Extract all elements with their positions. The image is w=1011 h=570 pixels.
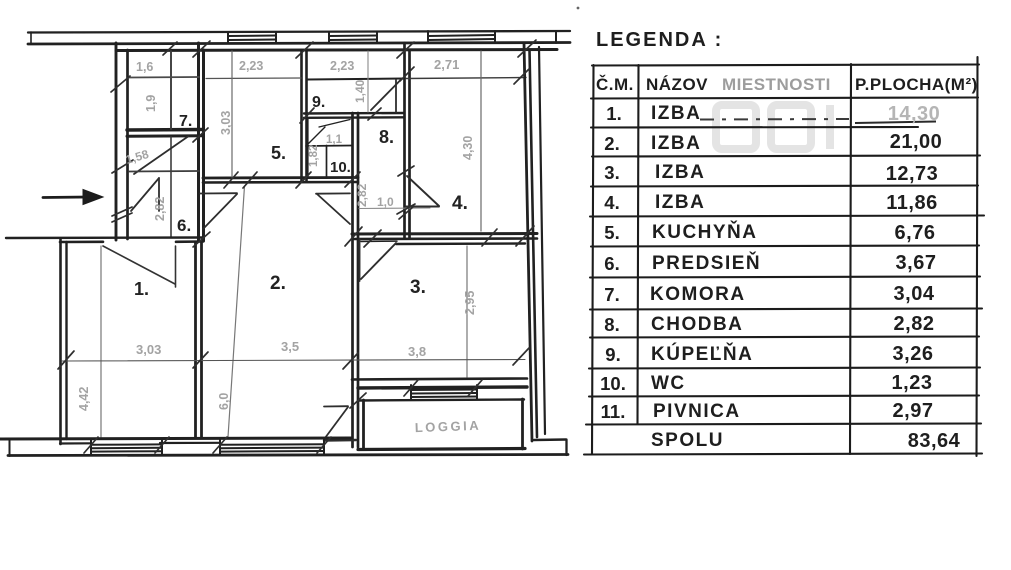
svg-text:1.: 1. [606, 103, 621, 124]
svg-text:1.: 1. [134, 279, 149, 299]
svg-text:8.: 8. [379, 127, 394, 147]
svg-text:KOMORA: KOMORA [650, 284, 746, 305]
svg-text:KUCHYŇA: KUCHYŇA [652, 221, 758, 243]
svg-text:1,6: 1,6 [136, 60, 153, 74]
svg-text:Č.M.: Č.M. [596, 75, 634, 94]
svg-text:3,67: 3,67 [896, 252, 937, 274]
svg-text:CHODBA: CHODBA [651, 314, 743, 335]
svg-text:6.: 6. [177, 216, 191, 235]
svg-text:2,82: 2,82 [355, 183, 369, 207]
svg-text:3.: 3. [604, 162, 619, 183]
svg-text:11,86: 11,86 [886, 192, 937, 214]
svg-text:PREDSIEŇ: PREDSIEŇ [652, 252, 761, 274]
svg-text:IZBA: IZBA [651, 133, 701, 154]
svg-text:7.: 7. [179, 113, 192, 130]
svg-text:1,1: 1,1 [326, 134, 343, 146]
svg-text:P.PLOCHA(M²): P.PLOCHA(M²) [855, 75, 978, 94]
svg-text:4,30: 4,30 [461, 136, 475, 160]
svg-text:3,26: 3,26 [893, 343, 934, 365]
svg-text:14,30: 14,30 [888, 103, 941, 125]
svg-text:10.: 10. [600, 373, 626, 394]
svg-text:WC: WC [651, 373, 686, 394]
svg-text:1,82: 1,82 [308, 145, 320, 167]
svg-text:KÚPEĽŇA: KÚPEĽŇA [651, 343, 753, 365]
svg-text:1,9: 1,9 [144, 95, 158, 112]
svg-text:4.: 4. [604, 192, 619, 213]
svg-text:2,97: 2,97 [893, 400, 934, 422]
svg-text:9.: 9. [605, 344, 620, 365]
svg-text:4.: 4. [452, 193, 468, 214]
svg-text:LOGGIA: LOGGIA [415, 418, 482, 435]
svg-text:5.: 5. [604, 222, 619, 243]
svg-text:12,73: 12,73 [886, 163, 939, 185]
svg-text:21,00: 21,00 [890, 131, 943, 153]
svg-text:3,04: 3,04 [894, 283, 935, 305]
svg-text:2,82: 2,82 [894, 313, 935, 335]
svg-text:SPOLU: SPOLU [651, 430, 724, 451]
svg-text:2.: 2. [270, 273, 286, 294]
svg-text:IZBA: IZBA [655, 162, 705, 183]
svg-text:3,03: 3,03 [219, 111, 233, 135]
svg-text:10.: 10. [330, 159, 351, 176]
svg-text:1,0: 1,0 [377, 195, 394, 209]
svg-text:NÁZOV: NÁZOV [646, 75, 708, 94]
svg-text:3,5: 3,5 [281, 339, 299, 354]
svg-text:9.: 9. [312, 94, 325, 111]
svg-text:IZBA: IZBA [651, 103, 701, 124]
svg-text:3,03: 3,03 [136, 342, 161, 357]
svg-text:6,76: 6,76 [895, 222, 936, 244]
svg-text:1,23: 1,23 [892, 372, 933, 394]
svg-text:LEGENDA :: LEGENDA : [596, 29, 723, 51]
svg-text:5.: 5. [271, 143, 286, 163]
svg-text:6,0: 6,0 [217, 393, 231, 410]
svg-text:2,82: 2,82 [153, 197, 167, 221]
svg-text:2,95: 2,95 [463, 291, 477, 315]
svg-text:2.: 2. [604, 133, 619, 154]
svg-text:4,42: 4,42 [77, 387, 91, 411]
svg-text:PIVNICA: PIVNICA [653, 401, 741, 422]
svg-text:2,71: 2,71 [434, 57, 459, 72]
svg-text:7.: 7. [604, 284, 619, 305]
svg-text:83,64: 83,64 [908, 430, 961, 452]
svg-text:6.: 6. [604, 253, 619, 274]
svg-text:1,40: 1,40 [353, 79, 367, 103]
svg-text:IZBA: IZBA [655, 192, 705, 213]
svg-text:8.: 8. [604, 314, 619, 335]
svg-text:2,23: 2,23 [239, 59, 263, 73]
svg-text:2,23: 2,23 [330, 59, 354, 73]
svg-text:3,8: 3,8 [408, 344, 426, 359]
svg-text:3.: 3. [410, 277, 426, 298]
svg-text:11.: 11. [601, 401, 626, 422]
svg-text:MIESTNOSTI: MIESTNOSTI [722, 75, 831, 94]
